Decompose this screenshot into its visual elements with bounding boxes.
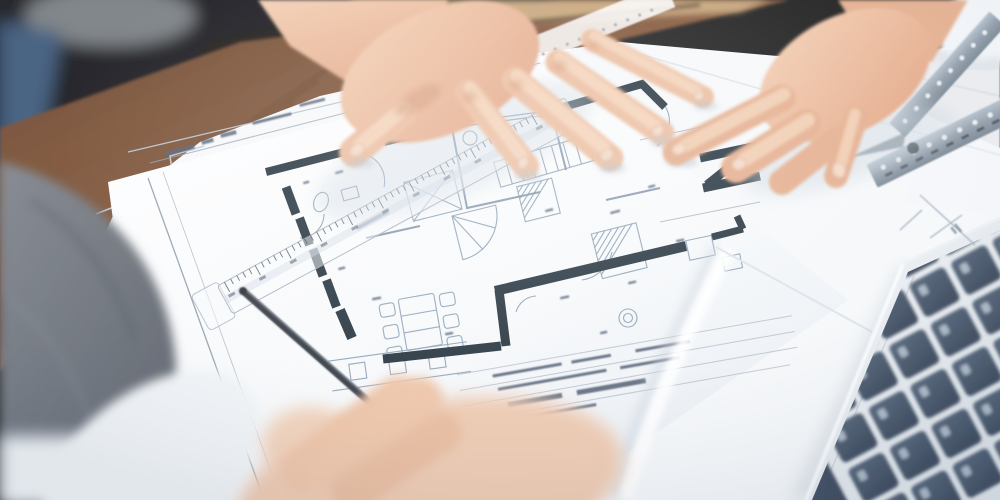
photo-canvas: [0, 0, 1000, 500]
vignette: [0, 0, 1000, 500]
photo-architects-blueprint: Close-up photograph of an architectural …: [0, 0, 1000, 500]
